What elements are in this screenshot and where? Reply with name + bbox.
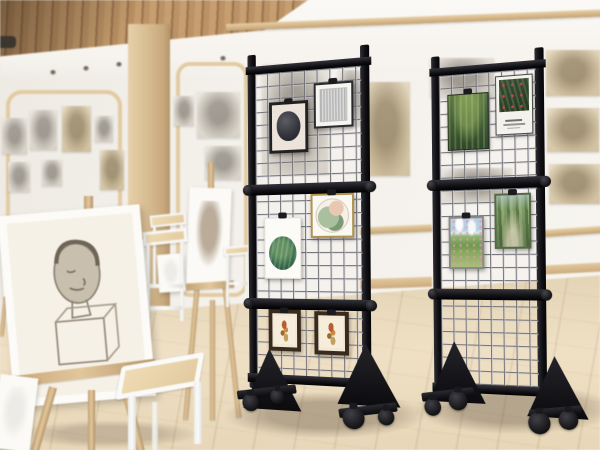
connector-knob <box>541 289 552 300</box>
ceiling-light <box>116 62 122 67</box>
portrait-sketch <box>0 204 156 408</box>
caster-wheel <box>342 406 364 430</box>
stool-seat <box>116 352 205 400</box>
stool-rung <box>227 282 247 285</box>
easel-leg <box>0 252 12 336</box>
stool-leg <box>194 382 202 444</box>
wall-sketch <box>549 164 600 204</box>
stool-leg <box>180 225 183 281</box>
wall-panel <box>176 62 248 297</box>
wire-grid-panel <box>439 68 539 387</box>
easel-leg <box>119 380 144 450</box>
stool-leg <box>153 226 156 284</box>
stand-frame-bar <box>432 289 549 301</box>
ceiling-light <box>50 70 56 75</box>
stool-leg <box>128 396 136 450</box>
caster-wheel <box>448 390 467 411</box>
stool-leg <box>226 255 229 307</box>
stool-seat <box>149 212 186 228</box>
easel-leg <box>108 238 120 318</box>
stool-rung <box>148 306 182 310</box>
stool-rung <box>147 284 183 288</box>
wood-pillar <box>128 24 170 310</box>
caster-wheel <box>559 410 579 431</box>
caster-wheel <box>378 408 395 426</box>
wire-grid-panel <box>255 66 363 388</box>
wall-sketch <box>546 50 600 96</box>
wall-sketch <box>8 162 30 192</box>
easel-ledge <box>4 359 156 388</box>
canvas <box>157 253 186 293</box>
canvas <box>0 374 38 450</box>
chair-rail <box>544 226 600 237</box>
baseboard <box>544 262 600 274</box>
caster-wheel <box>242 393 259 412</box>
canvas <box>57 229 101 288</box>
ceiling-light <box>220 56 226 61</box>
connector-knob <box>244 298 254 309</box>
easel-leg <box>210 300 215 420</box>
wall-sketch <box>2 118 27 154</box>
easel-mast <box>208 162 214 198</box>
wall-sketch <box>95 116 113 142</box>
stool-leg <box>146 243 150 323</box>
connector-knob <box>366 300 377 312</box>
easel-leg <box>183 260 202 420</box>
wall-sketch <box>547 108 599 152</box>
caster-wheel <box>270 389 284 405</box>
easel-mast <box>84 196 93 236</box>
stool-seat <box>142 228 187 247</box>
sketch-paper <box>7 213 148 399</box>
connector-knob <box>540 176 551 188</box>
wall-sketch <box>100 150 124 190</box>
canvas <box>1 245 36 297</box>
connector-knob <box>428 289 438 300</box>
easel-ledge <box>186 280 234 290</box>
stool-leg <box>180 241 184 321</box>
wall-sketch <box>197 92 240 138</box>
easel-leg <box>90 234 106 328</box>
easel-leg <box>30 250 43 336</box>
grid-display-stand-right <box>429 41 550 450</box>
wall-panel <box>6 90 122 300</box>
stool-leg <box>152 402 158 450</box>
easel-leg <box>88 390 95 450</box>
wall-sketch <box>42 160 62 186</box>
easel-leg <box>138 236 151 318</box>
caster-wheel <box>528 411 550 435</box>
wall-sketch <box>62 106 91 152</box>
easel-leg <box>50 236 66 328</box>
wall-sketch <box>205 146 241 180</box>
easel-leg <box>31 386 57 450</box>
grid-display-stand-left <box>246 38 374 449</box>
caster-wheel <box>424 398 441 417</box>
wall-sketch <box>30 110 57 150</box>
wall-trim <box>226 9 600 31</box>
canvas <box>186 187 231 284</box>
wall-sketch <box>174 96 194 126</box>
art-classroom-scene <box>0 0 600 450</box>
easel-mast <box>75 216 81 246</box>
ceiling-light <box>83 66 89 71</box>
portrait-canvas <box>0 204 156 408</box>
connector-knob <box>365 181 376 193</box>
canvas <box>109 239 147 288</box>
recessed-light <box>0 36 16 48</box>
floor-shadow <box>20 420 200 448</box>
